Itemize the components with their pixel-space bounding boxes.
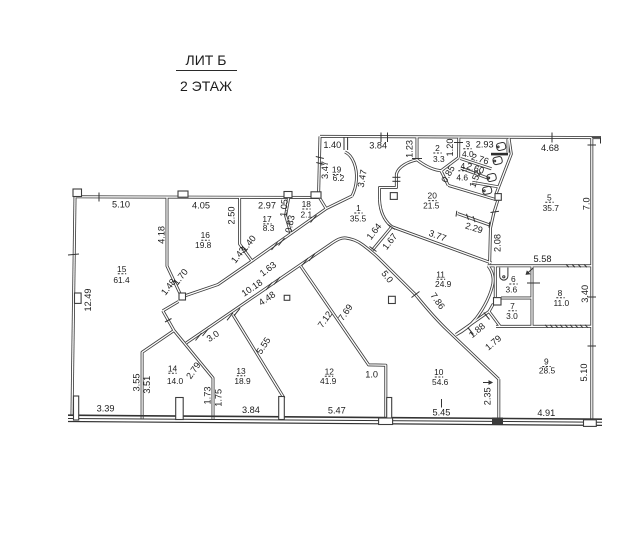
svg-text:41.9: 41.9	[320, 376, 337, 386]
svg-text:3.55: 3.55	[131, 374, 141, 392]
svg-text:2.08: 2.08	[492, 234, 502, 252]
svg-text:3.51: 3.51	[142, 376, 152, 394]
svg-text:4.91: 4.91	[537, 408, 555, 418]
svg-text:2.35: 2.35	[483, 387, 493, 405]
svg-text:54.6: 54.6	[432, 377, 449, 387]
svg-text:4.6: 4.6	[456, 173, 468, 183]
svg-text:5.58: 5.58	[534, 254, 552, 264]
svg-text:19.8: 19.8	[195, 240, 212, 250]
svg-text:18.9: 18.9	[234, 376, 251, 386]
svg-text:35.5: 35.5	[350, 214, 367, 224]
svg-text:11: 11	[436, 269, 445, 279]
svg-text:2: 2	[435, 143, 440, 153]
svg-text:3.84: 3.84	[242, 405, 260, 415]
svg-text:14: 14	[168, 363, 178, 373]
svg-text:8: 8	[558, 288, 563, 298]
svg-text:12.49: 12.49	[83, 289, 93, 312]
svg-text:4.18: 4.18	[157, 226, 167, 244]
svg-text:1.0: 1.0	[365, 370, 378, 380]
svg-text:3.84: 3.84	[369, 141, 387, 151]
svg-text:5.47: 5.47	[328, 406, 346, 416]
svg-text:3.47: 3.47	[320, 161, 330, 179]
svg-text:2.93: 2.93	[476, 139, 494, 149]
svg-text:6: 6	[511, 274, 516, 284]
svg-text:5.10: 5.10	[579, 364, 589, 382]
svg-text:1.75: 1.75	[213, 389, 223, 407]
svg-text:ЛИТ Б: ЛИТ Б	[186, 52, 227, 68]
svg-text:3.3: 3.3	[433, 154, 445, 164]
svg-text:1: 1	[356, 203, 361, 213]
svg-text:35.7: 35.7	[543, 203, 560, 213]
svg-text:24.9: 24.9	[435, 279, 452, 289]
svg-text:21.5: 21.5	[423, 200, 440, 210]
svg-text:2.1: 2.1	[300, 209, 312, 219]
svg-text:1.40: 1.40	[323, 140, 341, 150]
svg-text:3.6: 3.6	[505, 284, 517, 294]
svg-text:13: 13	[236, 366, 246, 376]
svg-text:1.23: 1.23	[405, 140, 415, 158]
svg-text:20: 20	[428, 191, 438, 201]
svg-text:18: 18	[302, 199, 312, 209]
svg-text:3.0: 3.0	[506, 311, 518, 321]
svg-text:6.2: 6.2	[333, 173, 345, 183]
svg-text:3: 3	[465, 139, 470, 149]
svg-text:7.0: 7.0	[581, 197, 591, 210]
svg-text:7: 7	[510, 301, 515, 311]
svg-text:5: 5	[547, 192, 552, 202]
svg-text:5.10: 5.10	[112, 200, 130, 210]
svg-text:15: 15	[117, 264, 127, 274]
svg-text:2 ЭТАЖ: 2 ЭТАЖ	[180, 78, 232, 94]
svg-text:2.50: 2.50	[227, 207, 237, 225]
svg-text:1.20: 1.20	[445, 139, 455, 157]
svg-text:4.05: 4.05	[192, 201, 210, 211]
svg-text:4.68: 4.68	[541, 143, 559, 153]
svg-text:14.0: 14.0	[167, 376, 184, 386]
svg-text:3.39: 3.39	[97, 403, 115, 413]
svg-text:11.0: 11.0	[553, 298, 569, 308]
svg-text:1.73: 1.73	[203, 387, 213, 405]
svg-text:61.4: 61.4	[113, 275, 130, 285]
svg-text:5.45: 5.45	[432, 408, 450, 418]
svg-text:16: 16	[201, 230, 211, 240]
svg-text:28.5: 28.5	[539, 366, 556, 376]
svg-text:2.97: 2.97	[258, 201, 276, 211]
svg-text:10: 10	[434, 367, 444, 377]
svg-text:8.3: 8.3	[263, 223, 275, 233]
svg-text:12: 12	[325, 366, 335, 376]
svg-text:3.40: 3.40	[580, 285, 590, 303]
